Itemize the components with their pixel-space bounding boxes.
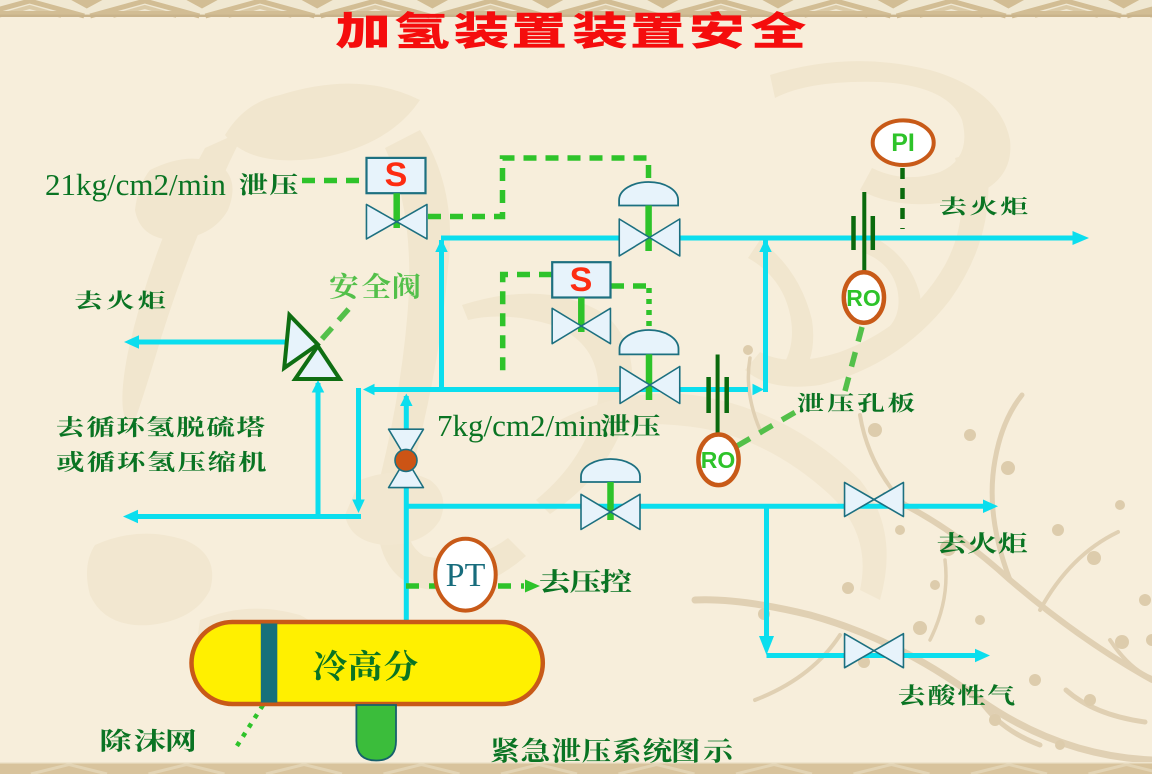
svg-text:S: S: [570, 261, 593, 299]
svg-text:21kg/cm2/min: 21kg/cm2/min: [45, 167, 226, 202]
svg-text:S: S: [385, 156, 408, 194]
svg-text:RO: RO: [846, 285, 881, 311]
svg-text:RO: RO: [701, 447, 736, 473]
svg-text:7kg/cm2/min: 7kg/cm2/min: [437, 408, 603, 443]
svg-text:PT: PT: [446, 557, 486, 594]
svg-text:PI: PI: [891, 129, 915, 157]
